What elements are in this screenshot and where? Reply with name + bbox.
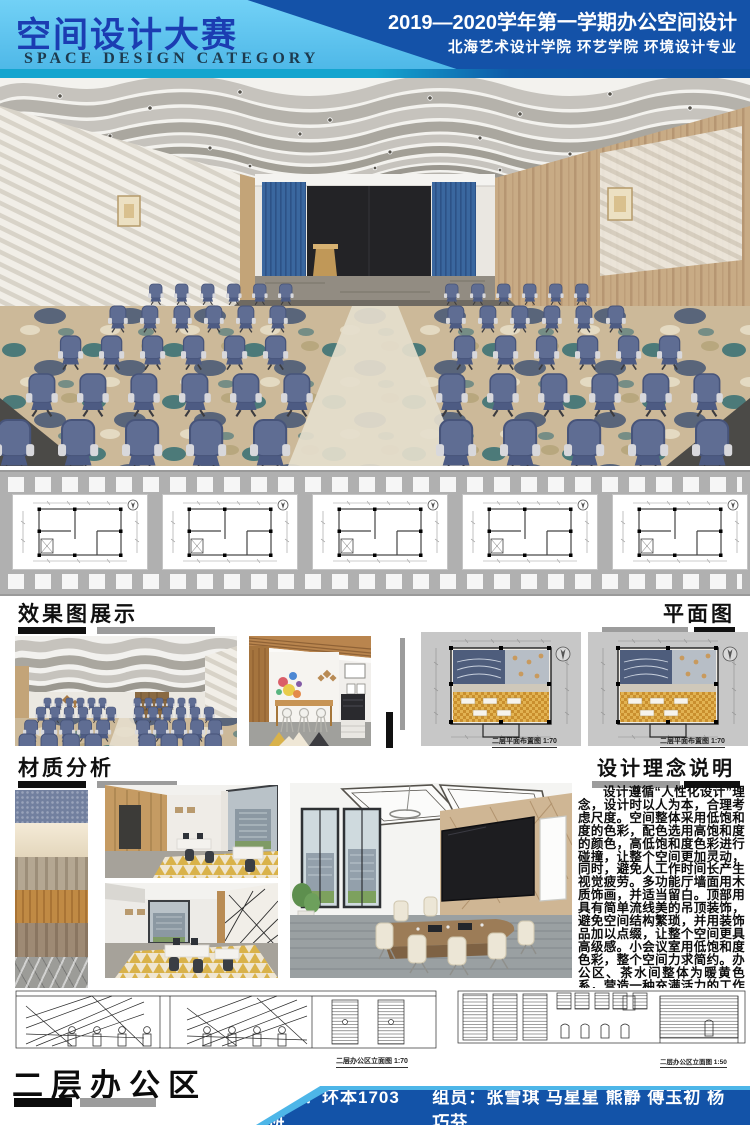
elevation-drawing-right bbox=[455, 988, 748, 1048]
material-swatch-blue-leather bbox=[15, 790, 88, 823]
hall-render-thumbnail bbox=[15, 636, 237, 746]
material-swatch-column bbox=[15, 790, 88, 990]
competition-subtitle: SPACE DESIGN CATEGORY bbox=[24, 50, 319, 68]
wall-frame-right bbox=[608, 188, 632, 220]
floorplan-thumbnail bbox=[313, 495, 447, 569]
material-swatch-cream bbox=[15, 823, 88, 856]
material-swatch-orange-wood bbox=[15, 890, 88, 923]
stage-curtain-left bbox=[262, 182, 306, 288]
tearoom-render-thumbnail bbox=[249, 636, 371, 746]
footer-credits-band: 班级：环本1703班 组员：张雪琪 马星星 熊静 傅玉初 杨巧芬 bbox=[268, 1090, 750, 1125]
floorplan-thumbnail bbox=[463, 495, 597, 569]
material-swatch-marble bbox=[15, 957, 88, 990]
concept-paragraph: 设计遵循“人性化设计”理念，设计时以人为本，合理考虑尺度。空间整体采用低饱和度的… bbox=[578, 786, 745, 1005]
heading-bar bbox=[97, 627, 215, 634]
poster: 空间设计大赛 SPACE DESIGN CATEGORY 2019—2020学年… bbox=[0, 0, 750, 1125]
divider-bar-black bbox=[386, 712, 393, 748]
elevation-caption-left: 二层办公区立面图 1:70 bbox=[336, 1056, 408, 1068]
heading-bar bbox=[18, 781, 86, 788]
elevation-caption-right: 二层办公区立面图 1:50 bbox=[660, 1056, 727, 1068]
course-title: 2019—2020学年第一学期办公空间设计 bbox=[388, 6, 737, 35]
plan-caption-right: 二层平面布置图 1:70 bbox=[660, 736, 725, 748]
heading-effect-renders: 效果图展示 bbox=[18, 598, 138, 628]
rug-triangles bbox=[269, 732, 329, 746]
floorplan-thumbnail bbox=[163, 495, 297, 569]
heading-floor-plan: 平面图 bbox=[663, 598, 735, 628]
material-swatch-gray-oak bbox=[15, 857, 88, 890]
podium bbox=[313, 244, 338, 276]
office-render-1 bbox=[105, 785, 278, 878]
heading-material-analysis: 材质分析 bbox=[18, 752, 114, 782]
floorplan-thumbnail bbox=[13, 495, 147, 569]
hero-multifunction-hall-render bbox=[0, 78, 750, 466]
printer bbox=[341, 694, 365, 720]
meeting-room-render bbox=[290, 783, 572, 978]
filmstrip-holes-bottom bbox=[8, 574, 742, 589]
colored-floorplan-2 bbox=[588, 632, 748, 746]
stage-curtain-right bbox=[432, 182, 476, 288]
plan-caption-left: 二层平面布置图 1:70 bbox=[492, 736, 557, 748]
divider-bar-gray bbox=[400, 638, 405, 730]
floorplan-thumbnail bbox=[613, 495, 747, 569]
school-name: 北海艺术设计学院 环艺学院 环境设计专业 bbox=[448, 36, 737, 57]
whiteboard bbox=[540, 816, 566, 901]
wall-frame-left bbox=[118, 196, 140, 226]
heading-bar bbox=[14, 1098, 72, 1107]
filmstrip-floorplans bbox=[0, 470, 750, 596]
filmstrip-holes-top bbox=[8, 477, 742, 492]
heading-design-concept: 设计理念说明 bbox=[597, 752, 735, 781]
heading-bar bbox=[18, 627, 86, 634]
colored-floorplan-1 bbox=[421, 632, 581, 746]
material-swatch-walnut bbox=[15, 923, 88, 956]
header-teal-strip bbox=[0, 69, 750, 78]
office-render-2 bbox=[105, 883, 278, 978]
elevation-drawing-left bbox=[12, 988, 440, 1054]
header: 空间设计大赛 SPACE DESIGN CATEGORY 2019—2020学年… bbox=[0, 0, 750, 78]
heading-bar bbox=[80, 1098, 156, 1107]
wall-screen bbox=[442, 817, 534, 901]
